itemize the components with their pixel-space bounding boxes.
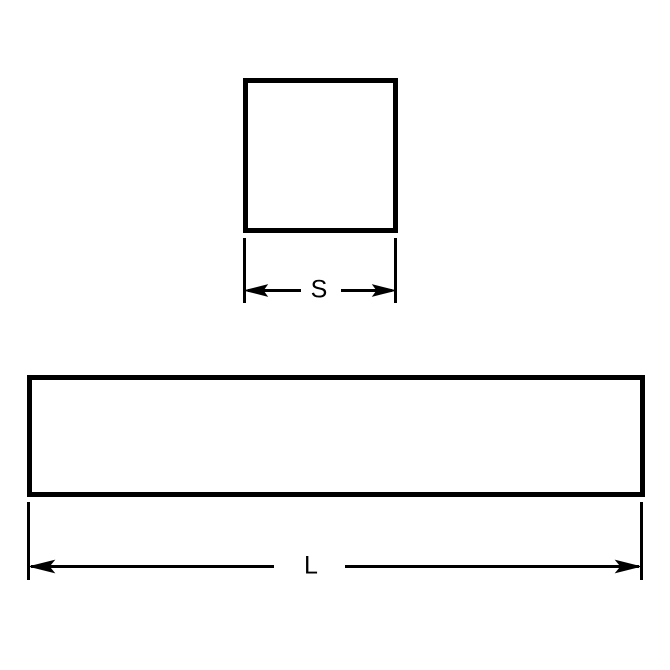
keystock-dimension-diagram: S L: [0, 0, 670, 670]
s-dimension-label: S: [309, 278, 330, 303]
l-dimension-label: L: [302, 554, 320, 579]
l-dimension-group: [29, 502, 642, 580]
dimension-lines-layer: [0, 0, 670, 670]
